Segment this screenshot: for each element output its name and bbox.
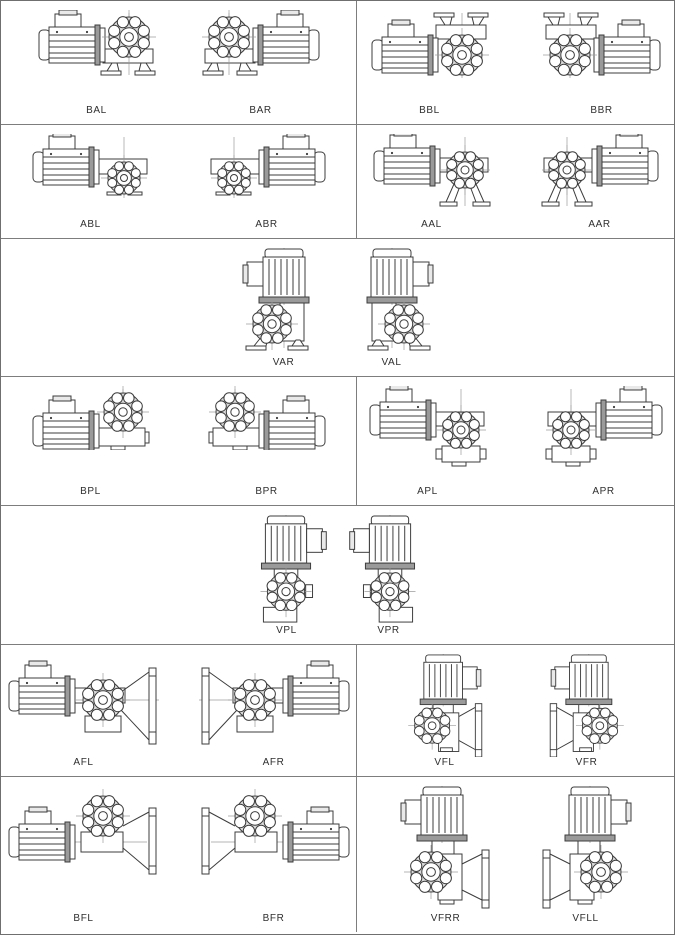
row-3: VARVAL xyxy=(1,239,674,377)
gearmotor-vertical-flange-long-mirrored-icon xyxy=(540,786,632,910)
figure-label: ABR xyxy=(255,219,277,231)
figure-label: VAR xyxy=(273,357,295,369)
figure-label: BAL xyxy=(86,105,107,117)
gearmotor-foot-down-motor-right-icon xyxy=(201,10,321,78)
figure-label: VFL xyxy=(434,757,454,769)
gearmotor-output-down-motor-right-icon xyxy=(207,134,327,198)
gearmotor-vertical-pendular-icon xyxy=(245,515,329,625)
cell-VFL-VFR: VFLVFR xyxy=(356,645,674,776)
row-7: BFLBFRVFRRVFLL xyxy=(1,777,674,932)
figure-VFLL: VFLL xyxy=(540,786,632,925)
figure-label: BAR xyxy=(249,105,271,117)
gearmotor-flange-high-motor-right-icon xyxy=(197,786,351,880)
gearmotor-foot-down-motor-left-icon xyxy=(37,10,157,78)
figure-label: BBL xyxy=(419,105,440,117)
figure-BBL: BBL xyxy=(370,10,490,117)
figure-VPL: VPL xyxy=(245,515,329,637)
figure-label: APL xyxy=(417,486,438,498)
figure-VAL: VAL xyxy=(350,248,434,369)
gearmotor-pendular-motor-right-icon xyxy=(207,386,327,450)
figure-label: AAL xyxy=(421,219,442,231)
cell-VFRR-VFLL: VFRRVFLL xyxy=(356,777,674,932)
figure-BAL: BAL xyxy=(37,10,157,117)
cell-APL-APR: APLAPR xyxy=(356,377,674,505)
figure-label: BPL xyxy=(80,486,101,498)
gearmotor-legs-motor-right-icon xyxy=(540,134,660,208)
gearmotor-flange-right-motor-left-icon xyxy=(7,654,161,746)
cell-AFL-AFR: AFLAFR xyxy=(1,645,356,776)
figure-AAL: AAL xyxy=(372,134,492,231)
figure-AAR: AAR xyxy=(540,134,660,231)
gearmotor-pendular-high-motor-right-icon xyxy=(544,386,664,468)
figure-label: BFR xyxy=(263,913,285,925)
gearmotor-vertical-flange-long-icon xyxy=(400,786,492,910)
gearmotor-output-down-motor-left-icon xyxy=(31,134,151,198)
gearmotor-flange-left-motor-right-icon xyxy=(197,654,351,746)
figure-ABL: ABL xyxy=(31,134,151,231)
gearmotor-vertical-flange-left-icon xyxy=(544,654,630,757)
gearmotor-vertical-flange-right-icon xyxy=(402,654,488,757)
gearmotor-vertical-pendular-mirrored-icon xyxy=(347,515,431,625)
figure-label: AFR xyxy=(263,757,285,769)
gearmotor-legs-motor-left-icon xyxy=(372,134,492,208)
cell-VAR-VAL: VARVAL xyxy=(1,239,674,376)
figure-AFL: AFL xyxy=(7,654,161,769)
figure-APR: APR xyxy=(544,386,664,498)
figure-BPL: BPL xyxy=(31,386,151,498)
figure-label: VPL xyxy=(276,625,297,637)
cell-BPL-BPR: BPLBPR xyxy=(1,377,356,505)
row-5: VPLVPR xyxy=(1,506,674,645)
figure-label: VFLL xyxy=(572,913,598,925)
figure-VAR: VAR xyxy=(242,248,326,369)
figure-BPR: BPR xyxy=(207,386,327,498)
figure-VFRR: VFRR xyxy=(400,786,492,925)
row-6: AFLAFRVFLVFR xyxy=(1,645,674,777)
row-4: BPLBPRAPLAPR xyxy=(1,377,674,506)
figure-label: BBR xyxy=(590,105,612,117)
figure-AFR: AFR xyxy=(197,654,351,769)
cell-BBL-BBR: BBLBBR xyxy=(356,1,674,124)
figure-label: APR xyxy=(592,486,614,498)
cell-AAL-AAR: AALAAR xyxy=(356,125,674,238)
figure-label: BPR xyxy=(255,486,277,498)
figure-BFR: BFR xyxy=(197,786,351,925)
figure-label: AAR xyxy=(588,219,610,231)
row-1: BALBARBBLBBR xyxy=(1,1,674,125)
gearmotor-foot-up-motor-left-icon xyxy=(370,10,490,78)
mounting-positions-sheet: BALBARBBLBBRABLABRAALAARVARVALBPLBPRAPLA… xyxy=(0,0,675,935)
figure-VFR: VFR xyxy=(544,654,630,769)
gearmotor-pendular-motor-left-icon xyxy=(31,386,151,450)
cell-VPL-VPR: VPLVPR xyxy=(1,506,674,644)
figure-BAR: BAR xyxy=(201,10,321,117)
gearmotor-flange-high-motor-left-icon xyxy=(7,786,161,880)
figure-ABR: ABR xyxy=(207,134,327,231)
figure-label: ABL xyxy=(80,219,101,231)
gearmotor-pendular-high-motor-left-icon xyxy=(368,386,488,468)
cell-BAL-BAR: BALBAR xyxy=(1,1,356,124)
figure-VPR: VPR xyxy=(347,515,431,637)
cell-BFL-BFR: BFLBFR xyxy=(1,777,356,932)
figure-BFL: BFL xyxy=(7,786,161,925)
figure-label: VAL xyxy=(382,357,402,369)
figure-label: BFL xyxy=(73,913,93,925)
figure-label: AFL xyxy=(73,757,93,769)
figure-APL: APL xyxy=(368,386,488,498)
gearmotor-vertical-foot-mirrored-icon xyxy=(350,248,434,354)
row-2: ABLABRAALAAR xyxy=(1,125,674,239)
figure-BBR: BBR xyxy=(542,10,662,117)
figure-label: VFRR xyxy=(431,913,461,925)
cell-ABL-ABR: ABLABR xyxy=(1,125,356,238)
figure-label: VPR xyxy=(377,625,399,637)
gearmotor-vertical-foot-icon xyxy=(242,248,326,354)
figure-VFL: VFL xyxy=(402,654,488,769)
gearmotor-foot-up-motor-right-icon xyxy=(542,10,662,78)
figure-label: VFR xyxy=(576,757,598,769)
